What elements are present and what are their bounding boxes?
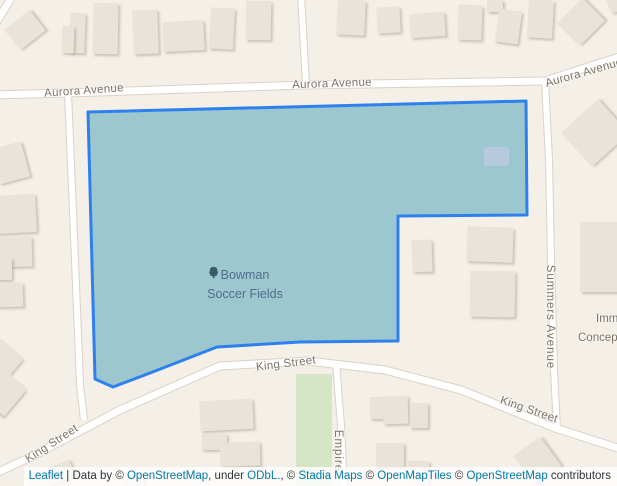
field-building: [484, 147, 509, 166]
attribution-text: | Data by ©: [63, 470, 127, 482]
poi-name-line2: Soccer Fields: [207, 285, 283, 304]
attribution-text: ©: [362, 470, 377, 482]
poi-marker[interactable]: Bowman Soccer Fields: [207, 266, 283, 304]
attribution-text: , ©: [280, 470, 298, 482]
attribution-text: ©: [452, 470, 467, 482]
map-canvas[interactable]: Aurora AvenueAurora AvenueAurora AvenueK…: [0, 0, 617, 486]
place-label: Concept: [578, 332, 617, 344]
attribution-link[interactable]: OpenStreetMap: [467, 470, 548, 482]
attribution-link[interactable]: Leaflet: [29, 470, 64, 482]
attribution-bar: Leaflet | Data by © OpenStreetMap, under…: [24, 467, 617, 486]
street-label: Summers Avenue: [544, 265, 556, 370]
attribution-link[interactable]: Stadia Maps: [298, 470, 362, 482]
soccer-fields-polygon[interactable]: [88, 101, 527, 387]
tree-icon: [207, 266, 220, 279]
attribution-link[interactable]: OpenStreetMap: [127, 470, 208, 482]
attribution-link[interactable]: ODbL.: [247, 470, 280, 482]
street-label: Empire: [332, 430, 344, 472]
attribution-text: , under: [208, 470, 247, 482]
attribution-link[interactable]: OpenMapTiles: [377, 470, 451, 482]
poi-name-line1: Bowman: [221, 266, 270, 285]
attribution-text: contributors: [548, 470, 611, 482]
place-label: Imm: [596, 313, 617, 325]
